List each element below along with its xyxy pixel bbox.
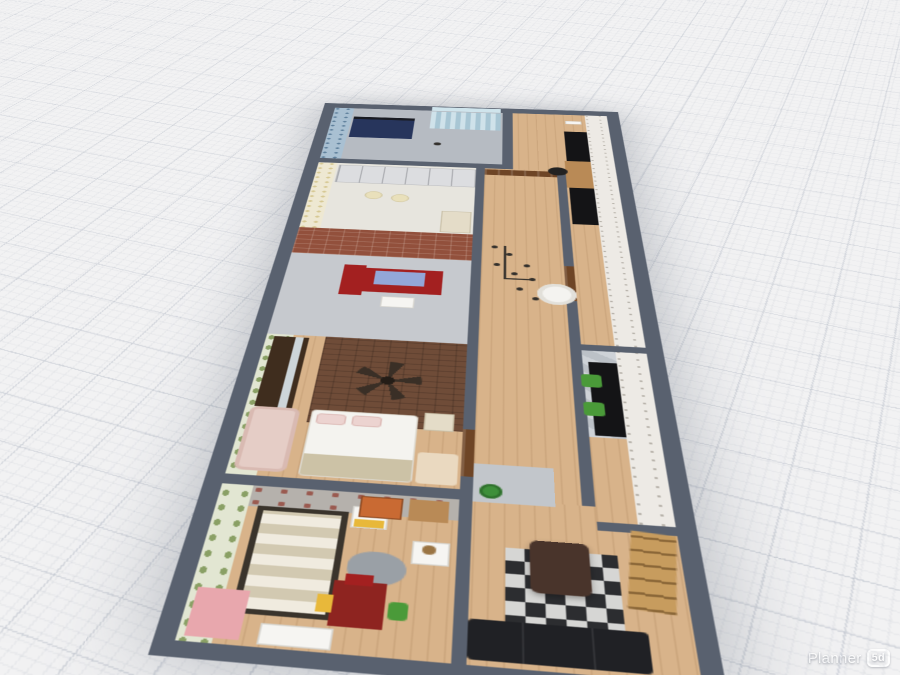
light-dot-6 (529, 278, 535, 281)
light-dot-4 (511, 272, 517, 275)
papers-white (380, 296, 415, 308)
chair-kids-yellow (315, 594, 334, 613)
chair-green-a (581, 374, 603, 388)
door-master-bedroom (461, 429, 476, 477)
wall-top-divider (502, 113, 513, 165)
light-dot-8 (532, 297, 539, 301)
rug-beige (415, 452, 459, 486)
light-string-wire-a (504, 246, 507, 279)
nightstand-master (423, 413, 454, 432)
curtains-window (430, 111, 501, 130)
floor-red-study (267, 252, 471, 344)
light-dot-3 (494, 263, 500, 266)
pillow-b (351, 415, 382, 427)
light-dot-5 (524, 264, 530, 267)
desk-top-office (565, 161, 594, 189)
desk-kids-red (327, 580, 387, 630)
armchair-brown (529, 540, 592, 597)
viewport-3d[interactable]: Planner 5d (0, 0, 900, 675)
pillow-a (315, 413, 347, 425)
ac-unit (565, 121, 582, 125)
floorplan-scene (148, 103, 730, 675)
light-dot-7 (516, 287, 523, 290)
bed-navy (349, 117, 415, 139)
watermark-badge-5d: 5d (867, 649, 890, 667)
desk-red-blue-top (373, 271, 425, 287)
light-dot-2 (506, 253, 512, 256)
watermark: Planner 5d (808, 649, 890, 667)
chair-kids-red (344, 573, 374, 586)
light-dot-1 (492, 245, 498, 248)
watermark-text: Planner (808, 650, 862, 667)
play-set-wood (408, 499, 449, 523)
toy-kitchen (358, 496, 403, 520)
ladder-shelf (628, 530, 677, 615)
chair-green-b (583, 402, 606, 417)
shelf-black-a (564, 132, 591, 162)
fridge (440, 211, 472, 233)
shelf-black-b (569, 188, 599, 226)
chair-kids-green (387, 602, 409, 622)
